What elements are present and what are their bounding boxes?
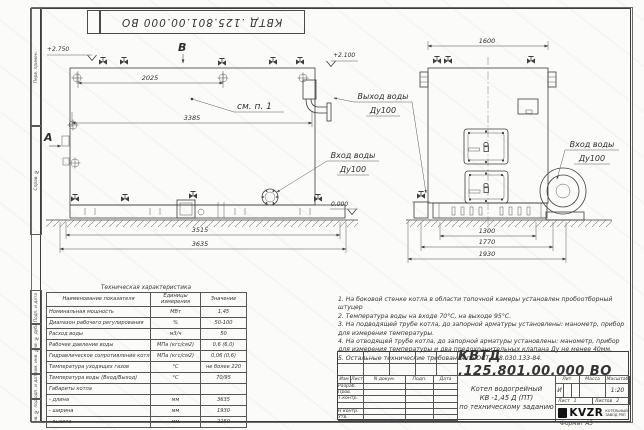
tech-table: Наименование показателя Единицы измерени…: [46, 292, 247, 428]
sheet-number: 1: [574, 399, 577, 404]
level-0000: 0.000: [331, 201, 348, 208]
view-label-b: В: [178, 41, 186, 54]
doc-number: КВТД .125.801.00.000 ВО: [458, 352, 629, 376]
dim-1300: 1300: [479, 227, 496, 235]
kvzr-logo-text: KVZR: [569, 407, 603, 419]
col-data: Дата: [434, 376, 458, 384]
manufacturer-logo: KVZR КОТЕЛЬНЫЙ ЗАВОД РЭП: [556, 405, 630, 421]
dim-1930: 1930: [479, 250, 496, 258]
lit-header: Лит.: [556, 376, 580, 384]
tech-col-units: Единицы измерения: [151, 293, 201, 307]
logo-sub2: ЗАВОД РЭП: [605, 413, 627, 417]
level-2100: +2.100: [333, 52, 355, 59]
technical-characteristics: Техническая характеристика Наименование …: [46, 285, 246, 428]
view-label-a: А: [43, 131, 53, 144]
mass-value: [580, 384, 606, 398]
side-view-base: [70, 200, 345, 218]
note-item: 2. Температура воды на входе 70°С, на вы…: [338, 313, 628, 321]
table-row: - длинамм3635: [47, 395, 247, 406]
lit-value: И: [556, 384, 564, 398]
inlet-right-label: Вход воды: [570, 140, 615, 149]
inlet-dn-label: Ду100: [339, 165, 366, 174]
format-note: Формат А3: [560, 421, 593, 427]
lower-furnace-door: [465, 171, 508, 203]
tech-table-title: Техническая характеристика: [46, 285, 246, 291]
dim-3515: 3515: [192, 226, 209, 234]
table-row: Рабочее давление водыМПа (кгс/см2)0,6 (6…: [47, 340, 247, 351]
dim-2025: 2025: [142, 74, 159, 82]
outlet-dn-label: Ду100: [369, 106, 396, 115]
inlet-right-dn-label: Ду100: [578, 154, 605, 163]
level-2750: +2.750: [47, 46, 69, 53]
upper-furnace-door: [464, 129, 508, 164]
inlet-label: Вход воды: [331, 151, 376, 160]
table-row: Номинальная мощностьМВт1,45: [47, 307, 247, 318]
scale-header: Масштаб: [606, 376, 630, 384]
dim-3385: 3385: [184, 114, 201, 122]
tech-col-name: Наименование показателя: [47, 293, 151, 307]
table-row: Температура уходящих газов°Сне более 220: [47, 362, 247, 373]
tech-col-value: Значение: [201, 293, 247, 307]
drawing-sheet: Перв. примен. Справ. № Подп. и дата Инв.…: [0, 0, 644, 430]
title-block: КВТД .125.801.00.000 ВО Изм Лист N докум…: [337, 351, 629, 420]
note-item: 1. На боковой стенке котла в области топ…: [338, 296, 628, 312]
front-view-dimensions: 1600 1300 1770 1930 Вход воды Ду100: [408, 37, 619, 263]
front-view-base: [433, 203, 547, 218]
table-row: - высотамм2250: [47, 417, 247, 428]
outlet-label: Выход воды: [358, 92, 409, 101]
pipe-labels-center: Выход воды Ду100 Вход воды Ду100: [277, 92, 426, 193]
scale-value: 1:20: [606, 384, 630, 398]
product-line2: КВ -1,45 Д (ПТ): [480, 394, 533, 403]
col-izm: Изм: [338, 376, 351, 384]
water-inlet-flange: [262, 189, 278, 205]
table-row: Диапазон рабочего регулирования%50-100: [47, 318, 247, 329]
role-utv: Утв.: [338, 415, 364, 421]
sheets-total: 2: [616, 399, 619, 404]
col-ndoc: N докум.: [364, 376, 406, 384]
dim-1600: 1600: [479, 37, 496, 45]
table-row: Температура воды (Вход/Выход)°С70/95: [47, 373, 247, 384]
tech-table-header-row: Наименование показателя Единицы измерени…: [47, 293, 247, 307]
table-row: Расход водым3/ч50: [47, 329, 247, 340]
note-item: 3. На подводящей трубе котла, до запорно…: [338, 321, 628, 337]
mass-header: Масса: [580, 376, 606, 384]
dim-3635: 3635: [192, 240, 209, 248]
table-row: Гидравлическое сопротивление котлаМПа (к…: [47, 351, 247, 362]
kvzr-logo-mark: [558, 408, 567, 418]
callout-see-note-1: см. п. 1: [237, 102, 272, 112]
water-outlet-elbow: [303, 80, 331, 121]
sheets-label: Листов: [595, 399, 612, 404]
product-line3: по техническому заданию: [459, 403, 554, 412]
table-row: Габариты котла: [47, 384, 247, 395]
product-name: Котел водогрейный КВ -1,45 Д (ПТ) по тех…: [458, 376, 556, 421]
table-row: - ширинамм1930: [47, 406, 247, 417]
col-podp: Подп.: [406, 376, 434, 384]
dim-1770: 1770: [479, 238, 496, 246]
sheet-label: Лист: [558, 399, 570, 404]
col-list: Лист: [351, 376, 364, 384]
product-line1: Котел водогрейный: [471, 385, 542, 394]
